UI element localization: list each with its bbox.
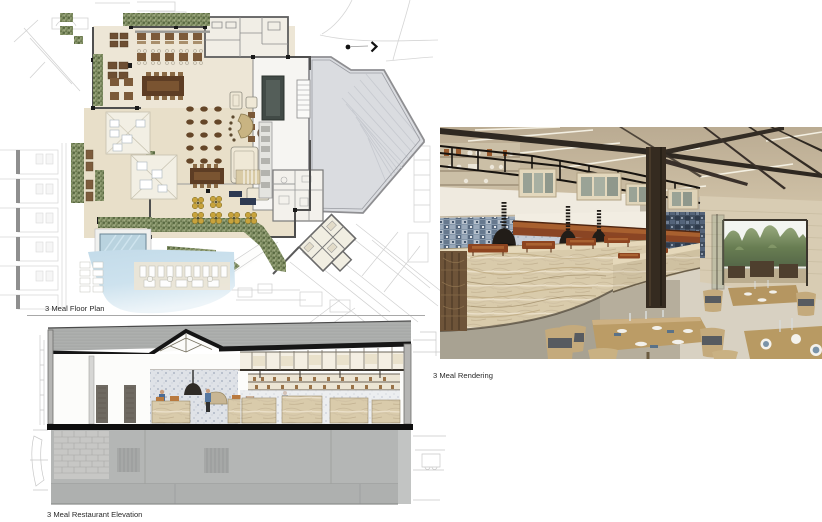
svg-text:3 Meal Floor Plan: 3 Meal Floor Plan	[45, 304, 105, 313]
svg-text:3 Meal Rendering: 3 Meal Rendering	[433, 371, 493, 380]
svg-text:3 Meal Restaurant Elevation: 3 Meal Restaurant Elevation	[47, 510, 142, 519]
